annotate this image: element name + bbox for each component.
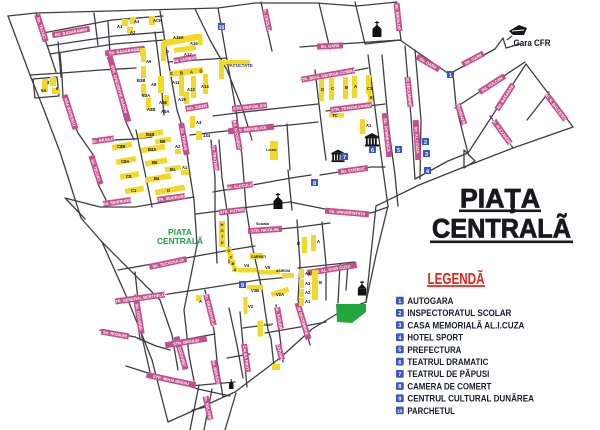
svg-text:V2A: V2A	[276, 292, 284, 297]
svg-text:A16A: A16A	[173, 35, 184, 40]
svg-text:A3: A3	[134, 19, 140, 24]
svg-text:C: C	[230, 255, 233, 260]
svg-text:5A: 5A	[41, 88, 46, 93]
svg-text:O: O	[221, 228, 224, 233]
svg-text:134: 134	[203, 133, 211, 138]
svg-text:A2: A2	[305, 290, 311, 295]
svg-text:Liceu: Liceu	[266, 147, 277, 152]
svg-text:CARPATI: CARPATI	[251, 255, 266, 259]
svg-text:B1: B1	[170, 167, 176, 172]
svg-text:C: C	[331, 86, 334, 91]
svg-text:HOTEL SPORT: HOTEL SPORT	[407, 333, 463, 343]
svg-text:A13: A13	[187, 87, 195, 92]
svg-text:D: D	[321, 87, 324, 92]
svg-text:B: B	[297, 241, 300, 246]
svg-text:A3: A3	[305, 281, 311, 286]
svg-text:ASIROM: ASIROM	[276, 269, 290, 273]
svg-text:B4: B4	[154, 176, 160, 181]
svg-text:3: 3	[398, 323, 401, 329]
svg-text:A1: A1	[366, 123, 372, 128]
svg-text:LEGENDÃ: LEGENDÃ	[428, 268, 485, 288]
svg-text:V3B: V3B	[251, 288, 259, 293]
svg-text:Str. GARII: Str. GARII	[321, 43, 340, 49]
svg-text:A3: A3	[196, 120, 202, 125]
svg-text:A2: A2	[175, 144, 181, 149]
svg-text:V5: V5	[265, 265, 271, 270]
svg-text:B: B	[232, 261, 235, 266]
svg-text:C8: C8	[126, 174, 132, 179]
svg-text:A2: A2	[130, 30, 136, 35]
svg-text:AUTOGARA: AUTOGARA	[407, 296, 453, 306]
svg-text:PREFECTURA: PREFECTURA	[407, 345, 461, 355]
svg-text:CENTRUL CULTURAL DUNÃREA: CENTRUL CULTURAL DUNÃREA	[407, 394, 534, 404]
svg-text:A: A	[354, 84, 357, 89]
svg-text:CENTRALÃ: CENTRALÃ	[157, 236, 203, 246]
svg-text:V2: V2	[248, 304, 254, 309]
svg-text:FACULTATE: FACULTATE	[227, 63, 253, 68]
svg-text:CASA MEMORIALÃ AL.I.CUZA: CASA MEMORIALÃ AL.I.CUZA	[407, 320, 524, 330]
svg-text:1: 1	[398, 299, 401, 305]
svg-text:C8A: C8A	[121, 159, 129, 164]
svg-text:A: A	[190, 70, 193, 75]
svg-text:A4: A4	[305, 271, 311, 276]
svg-text:A: A	[234, 267, 237, 272]
svg-text:B5: B5	[152, 160, 158, 165]
svg-text:A19: A19	[178, 97, 186, 102]
svg-text:B: B	[345, 85, 348, 90]
svg-text:A: A	[199, 299, 202, 304]
svg-text:A3B: A3B	[147, 107, 155, 112]
svg-text:6: 6	[371, 148, 374, 154]
svg-text:V4: V4	[244, 263, 250, 268]
svg-text:Gara CFR: Gara CFR	[514, 38, 551, 48]
svg-text:10: 10	[219, 25, 225, 31]
svg-text:1: 1	[449, 73, 452, 79]
svg-text:B4A: B4A	[148, 147, 156, 152]
svg-text:D: D	[167, 188, 170, 193]
svg-text:TC: TC	[332, 113, 338, 118]
svg-text:A11: A11	[172, 80, 180, 85]
svg-text:PIAŢA: PIAŢA	[460, 184, 540, 214]
svg-text:H: H	[221, 222, 224, 227]
svg-text:CAMERA DE COMERT: CAMERA DE COMERT	[407, 381, 491, 391]
svg-text:A58: A58	[159, 100, 167, 105]
svg-text:A8: A8	[151, 82, 157, 87]
svg-text:B: B	[180, 71, 183, 76]
svg-text:B3B: B3B	[137, 78, 145, 83]
svg-text:8: 8	[398, 384, 401, 390]
svg-text:A1: A1	[182, 165, 188, 170]
svg-text:D: D	[200, 69, 203, 74]
svg-text:B4B: B4B	[146, 132, 154, 137]
svg-text:TEATRUL DE PÃPUSI: TEATRUL DE PÃPUSI	[407, 369, 489, 379]
svg-text:C: C	[170, 71, 173, 76]
svg-text:8: 8	[313, 181, 316, 187]
svg-text:A5A: A5A	[161, 109, 169, 114]
svg-text:2: 2	[424, 140, 427, 146]
svg-text:TEATRUL DRAMATIC: TEATRUL DRAMATIC	[407, 357, 488, 367]
svg-text:B8: B8	[160, 139, 166, 144]
svg-text:A1: A1	[305, 299, 311, 304]
svg-text:7: 7	[398, 372, 401, 378]
svg-text:3: 3	[425, 152, 428, 158]
svg-text:PARCHETUL: PARCHETUL	[407, 406, 455, 416]
svg-text:A14: A14	[201, 84, 209, 89]
svg-text:7: 7	[343, 155, 346, 161]
svg-text:A9: A9	[146, 59, 152, 64]
svg-text:9: 9	[241, 283, 244, 289]
svg-text:A: A	[317, 239, 320, 244]
svg-text:6: 6	[398, 360, 401, 366]
svg-text:C1: C1	[131, 188, 137, 193]
svg-text:5: 5	[398, 348, 401, 354]
svg-text:ACH: ACH	[153, 18, 162, 23]
svg-text:40AP: 40AP	[264, 323, 274, 327]
svg-text:D: D	[228, 248, 231, 253]
svg-text:E: E	[370, 95, 373, 100]
svg-text:E3A: E3A	[142, 93, 150, 98]
svg-text:A17: A17	[184, 52, 192, 57]
svg-text:B: B	[319, 280, 322, 285]
svg-text:C1: C1	[367, 86, 373, 91]
svg-text:9: 9	[398, 396, 401, 402]
svg-text:5: 5	[397, 148, 400, 154]
svg-text:A1: A1	[117, 24, 123, 29]
svg-text:2: 2	[398, 311, 401, 317]
svg-text:INSPECTORATUL SCOLAR: INSPECTORATUL SCOLAR	[407, 308, 511, 318]
svg-text:C8B: C8B	[117, 144, 125, 149]
svg-text:E: E	[221, 240, 224, 245]
svg-text:Scoala: Scoala	[256, 221, 270, 226]
svg-text:10: 10	[397, 409, 403, 414]
svg-text:CENTRALÃ: CENTRALÃ	[432, 213, 571, 244]
